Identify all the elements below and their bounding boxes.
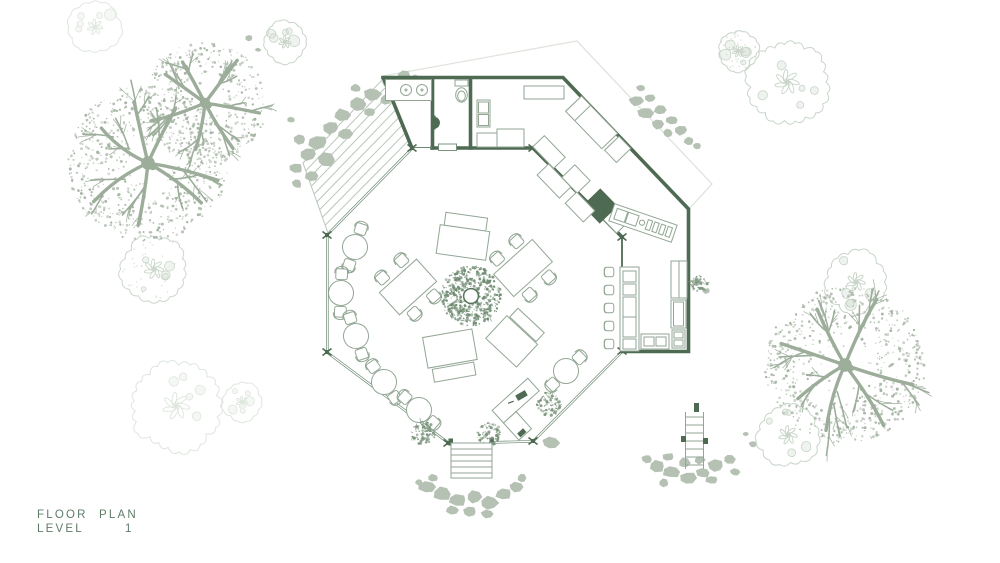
outline-tree (67, 1, 122, 53)
trees-layer (67, 1, 931, 466)
utility-room-fixtures (386, 80, 432, 101)
plan-title: FLOOR PLAN LEVEL 1 (37, 509, 207, 541)
large-tree (142, 42, 277, 172)
title-word-plan: PLAN (99, 509, 138, 521)
bedroom-furniture (477, 86, 632, 233)
title-word-level: LEVEL (37, 523, 84, 535)
bathroom-fixtures (433, 80, 469, 130)
outline-tree (718, 31, 759, 73)
title-word-floor: FLOOR (37, 509, 88, 521)
dining-table (423, 329, 480, 383)
floor-plan-drawing (0, 0, 1000, 563)
outline-tree (119, 236, 186, 303)
dining-table (436, 212, 491, 261)
ladder (681, 403, 708, 469)
entrance-stairs (451, 443, 492, 478)
outline-tree (264, 20, 307, 65)
cafe-table (335, 218, 375, 276)
cafe-table (391, 383, 447, 437)
floor-plan-page: FLOOR PLAN LEVEL 1 (0, 0, 1000, 563)
outline-tree (222, 382, 262, 423)
outline-tree (824, 249, 886, 316)
outline-tree (745, 41, 830, 124)
cafe-table (328, 266, 355, 320)
title-word-level-number: 1 (125, 523, 134, 535)
plant-foliage (536, 391, 562, 416)
dining-table (486, 306, 547, 367)
dining-table (483, 227, 564, 309)
central-planter (441, 266, 502, 327)
outline-tree (755, 403, 820, 466)
outline-tree (131, 360, 222, 454)
dining-table (368, 247, 447, 327)
